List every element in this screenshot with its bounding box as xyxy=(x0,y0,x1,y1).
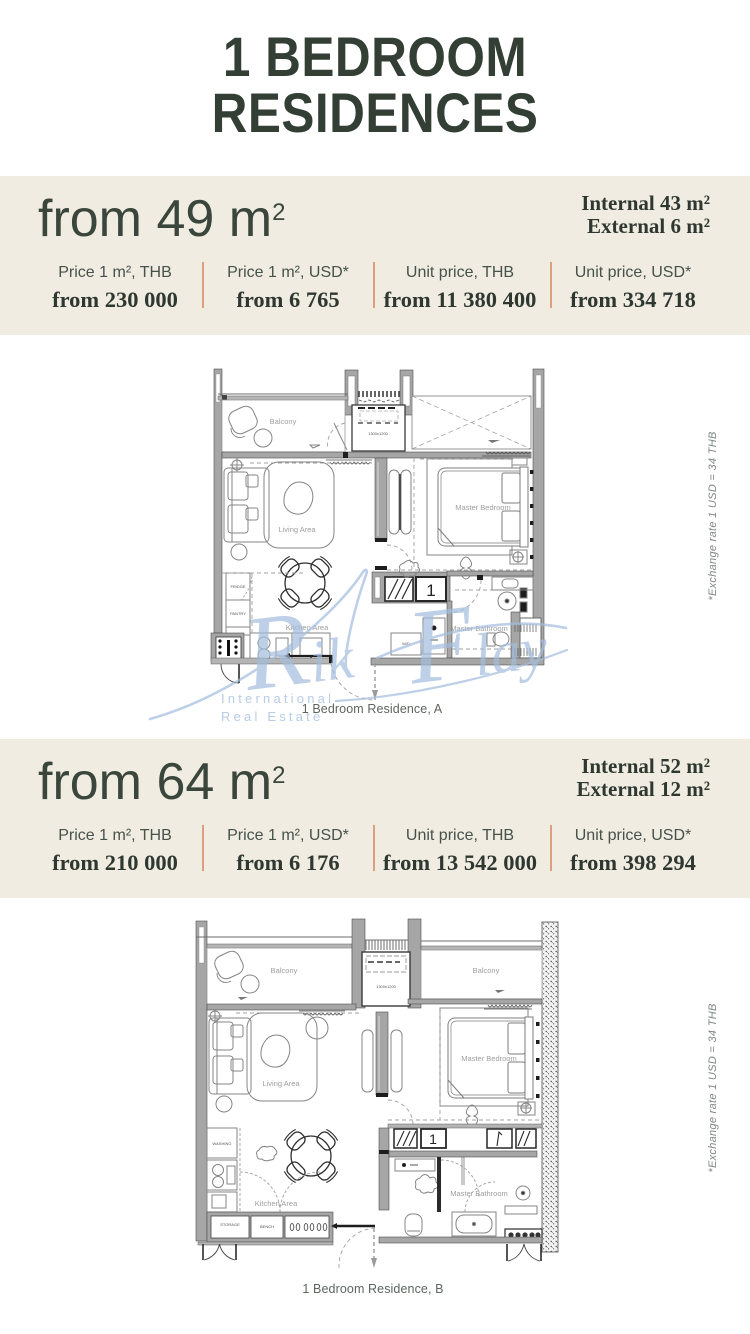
svg-text:Balcony: Balcony xyxy=(271,966,298,975)
svg-text:Living Area: Living Area xyxy=(262,1079,300,1088)
svg-text:Kitchen Area: Kitchen Area xyxy=(255,1199,298,1208)
svg-text:STORAGE: STORAGE xyxy=(220,1222,240,1227)
svg-text:1: 1 xyxy=(429,1131,437,1147)
svg-text:Master Bedroom: Master Bedroom xyxy=(455,503,510,512)
svg-text:Balcony: Balcony xyxy=(473,966,500,975)
svg-text:BENCH: BENCH xyxy=(260,1224,274,1229)
svg-text:1300x1200: 1300x1200 xyxy=(376,984,397,989)
svg-text:WASHING: WASHING xyxy=(213,1141,232,1146)
svg-text:Master Bedroom: Master Bedroom xyxy=(461,1054,516,1063)
svg-text:Living Area: Living Area xyxy=(278,525,316,534)
svg-text:1300x1200: 1300x1200 xyxy=(368,431,389,436)
svg-text:Balcony: Balcony xyxy=(270,417,297,426)
